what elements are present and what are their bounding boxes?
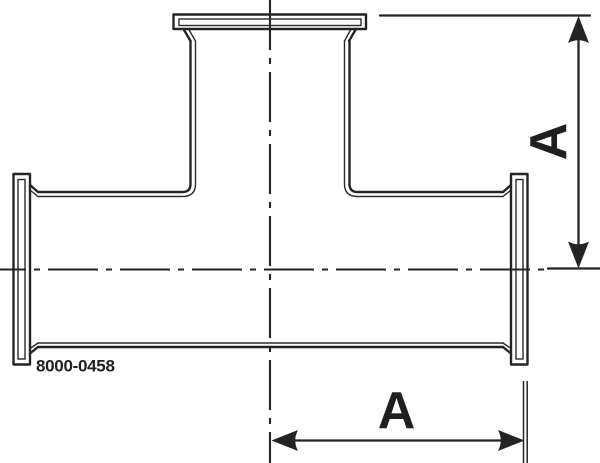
horizontal-dimension-extension-right bbox=[524, 381, 528, 463]
vertical-dimension-arrow-down-icon bbox=[568, 242, 589, 269]
vertical-dimension-arrow-up-icon bbox=[568, 16, 589, 43]
horizontal-dimension-arrow-right-icon bbox=[498, 430, 525, 451]
horizontal-dimension-arrow-left-icon bbox=[272, 430, 299, 451]
technical-drawing-canvas: A A 8000-0458 bbox=[0, 0, 600, 463]
horizontal-dimension-label: A bbox=[378, 382, 416, 440]
vertical-dimension: A bbox=[380, 16, 590, 269]
part-number-label: 8000-0458 bbox=[36, 357, 115, 376]
vertical-dimension-label: A bbox=[520, 123, 578, 161]
tee-fitting-technical-drawing: A A 8000-0458 bbox=[0, 0, 600, 463]
horizontal-dimension: A bbox=[272, 381, 528, 463]
